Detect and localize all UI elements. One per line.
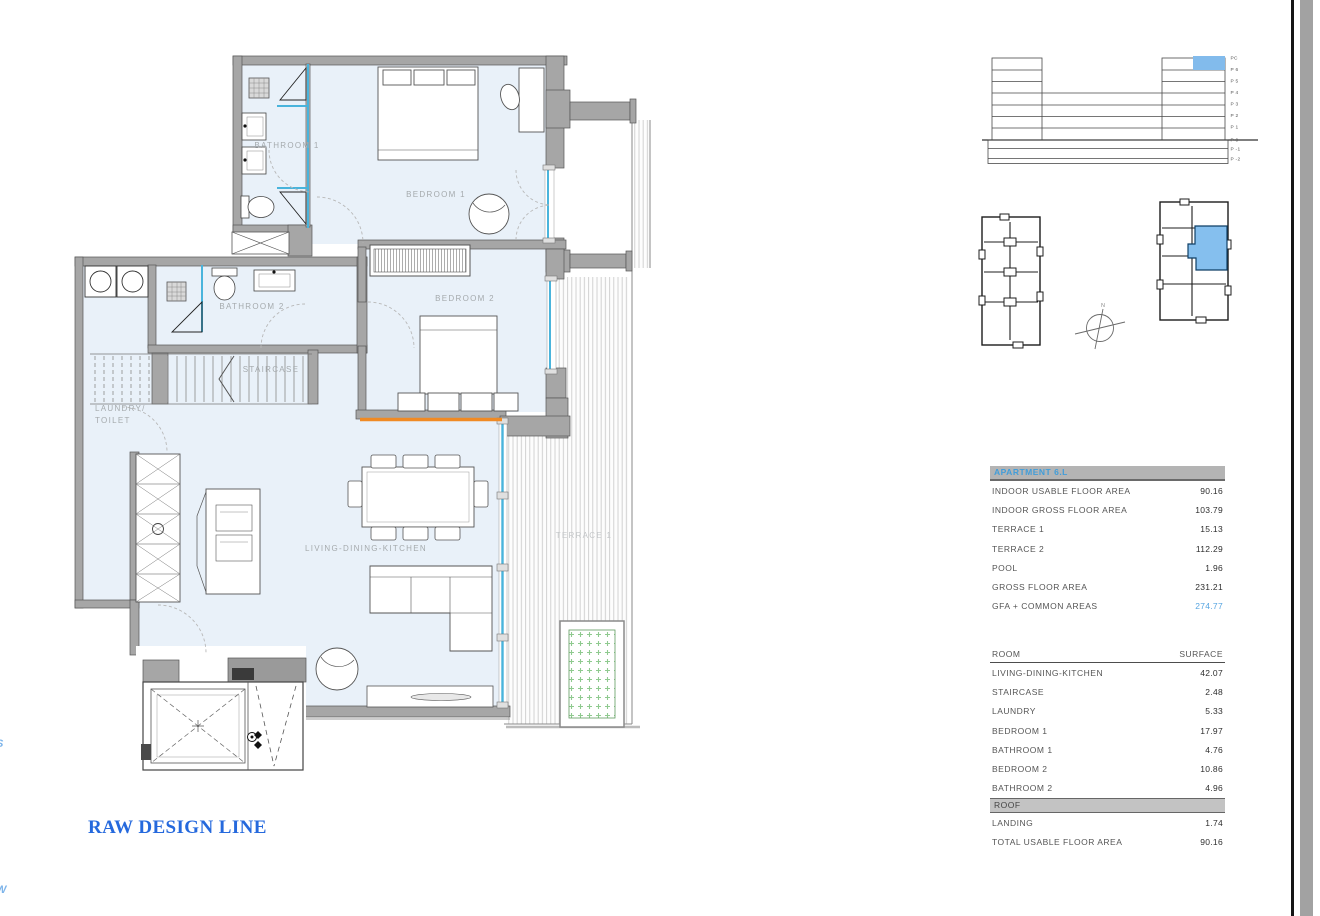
kitchen-counter [136,454,180,602]
floor-plan: BATHROOM 1 BEDROOM 1 BEDROOM 2 BATHROOM … [60,48,664,792]
key-plan-left [979,214,1043,348]
table-row: LAUNDRY 5.33 [990,702,1225,721]
armchair [469,194,509,234]
svg-text:P 5: P 5 [1231,79,1239,85]
roof-section-header: ROOF [990,798,1225,813]
room-label-bedroom2: BEDROOM 2 [435,294,495,303]
compass-north-label: N [1101,303,1105,309]
table-row: INDOOR GROSS FLOOR AREA 103.79 [990,500,1225,519]
room-label-bathroom2: BATHROOM 2 [219,302,284,311]
bed [420,316,497,394]
elevation-highlighted-unit [1193,56,1225,70]
svg-text:P 2: P 2 [1231,113,1239,119]
terrace-deck-upper [558,277,628,435]
planter [560,621,624,727]
key-plan-right [1157,199,1231,323]
table-row: LIVING-DINING-KITCHEN 42.07 [990,663,1225,682]
toilet [212,268,237,300]
svg-text:P 4: P 4 [1231,90,1239,96]
svg-text:PC: PC [1231,56,1238,62]
dining-table [362,467,474,527]
sheet-border-line [1291,0,1294,916]
sheet-border-bar [1300,0,1313,916]
staircase-floor [90,354,312,404]
table-row: TERRACE 2 112.29 [990,539,1225,558]
shower-head-icon [167,282,186,301]
svg-text:P -1: P -1 [1231,147,1241,153]
table-row: BATHROOM 2 4.96 [990,779,1225,798]
svg-text:P 1: P 1 [1231,125,1239,131]
room-label-bedroom1: BEDROOM 1 [406,190,466,199]
building-elevation [982,56,1258,164]
room-table-header: ROOM SURFACE [990,645,1225,663]
room-label-laundry-1: LAUNDRY/ [95,404,146,413]
table-row: BATHROOM 1 4.76 [990,740,1225,759]
table-row: STAIRCASE 2.48 [990,682,1225,701]
location-diagrams: PC P 6 P 5 P 4 P 3 P 2 P 1 P 0 P -1 P -2… [958,45,1280,365]
kitchen-island [197,489,260,594]
apartment-area-table: APARTMENT 6.L INDOOR USABLE FLOOR AREA 9… [990,466,1225,616]
table-row: GROSS FLOOR AREA 231.21 [990,577,1225,596]
tv-console [367,686,493,707]
desk [519,68,544,132]
compass: N [1075,303,1125,349]
table-row: TERRACE 1 15.13 [990,520,1225,539]
table-row: BEDROOM 2 10.86 [990,759,1225,778]
table-row-gfa-common: GFA + COMMON AREAS 274.77 [990,597,1225,616]
left-edge-text-fragment-s: S [0,738,3,750]
armchair [316,648,358,690]
terrace-deck-strip [634,120,650,268]
table-row: BEDROOM 1 17.97 [990,721,1225,740]
table-row: INDOOR USABLE FLOOR AREA 90.16 [990,481,1225,500]
apartment-table-title: APARTMENT 6.L [990,466,1225,481]
table-row: TOTAL USABLE FLOOR AREA 90.16 [990,832,1225,851]
closet-crossed [232,232,289,254]
room-label-bathroom1: BATHROOM 1 [254,141,319,150]
room-label-laundry-2: TOILET [95,416,131,425]
table-row: LANDING 1.74 [990,813,1225,832]
svg-text:P 3: P 3 [1231,102,1239,108]
room-label-terrace1: TERRACE 1 [556,531,613,540]
room-label-living: LIVING-DINING-KITCHEN [305,544,427,553]
elevation-level-labels: PC P 6 P 5 P 4 P 3 P 2 P 1 P 0 P -1 P -2 [1231,56,1241,163]
elevator-core [136,646,306,778]
svg-text:P -2: P -2 [1231,157,1241,163]
room-label-staircase: STAIRCASE [243,365,299,374]
brand-logo-text: RAW DESIGN LINE [88,817,267,839]
table-row: POOL 1.96 [990,558,1225,577]
svg-text:P 6: P 6 [1231,67,1239,73]
svg-text:P 0: P 0 [1231,138,1239,144]
left-edge-text-fragment-w: W [0,884,6,896]
wardrobe [370,245,470,276]
room-surface-table: ROOM SURFACE LIVING-DINING-KITCHEN 42.07… [990,645,1225,852]
toilet [241,196,274,218]
